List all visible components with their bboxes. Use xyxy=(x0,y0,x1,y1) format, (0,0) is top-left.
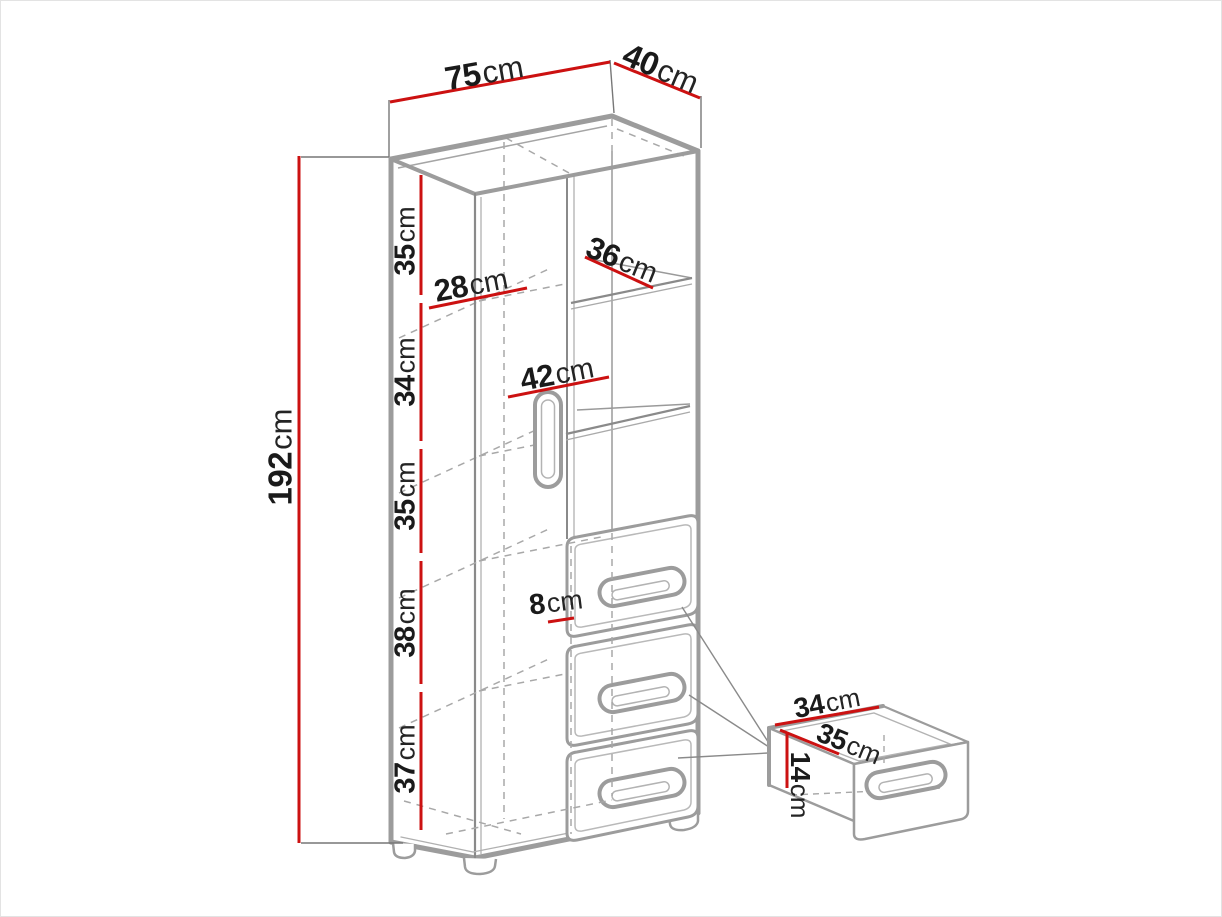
dimension-diagram: 75cm 40cm 192cm 35cm 34cm 35cm 38cm 37cm… xyxy=(0,0,1222,917)
dimension-value: 35 xyxy=(390,499,422,530)
foot-front xyxy=(464,858,496,874)
dimension-unit: cm xyxy=(264,409,299,450)
door-handle xyxy=(535,392,561,487)
open-shelf-middle xyxy=(566,404,690,440)
dimension-value: 14 xyxy=(785,752,816,782)
section-height-label-3: 35cm xyxy=(392,461,421,530)
section-height-label-4: 38cm xyxy=(392,588,421,657)
dimension-value: 35 xyxy=(390,244,422,275)
drawer-stack xyxy=(567,516,698,841)
dimension-value: 37 xyxy=(390,762,422,793)
dimension-value: 34 xyxy=(390,375,422,406)
dimension-unit: cm xyxy=(785,784,815,819)
height-dimension-label: 192cm xyxy=(264,409,297,506)
leader-line-2 xyxy=(689,695,772,749)
foot-left xyxy=(393,843,415,858)
dimension-unit: cm xyxy=(391,206,421,242)
dimension-unit: cm xyxy=(391,724,421,760)
dimension-unit: cm xyxy=(391,337,421,373)
dimension-unit: cm xyxy=(391,461,421,497)
dimension-value: 8 xyxy=(527,588,546,622)
section-height-label-5: 37cm xyxy=(392,724,421,793)
dimension-unit: cm xyxy=(391,588,421,624)
dimension-unit: cm xyxy=(545,584,584,618)
section-height-label-2: 34cm xyxy=(392,337,421,406)
dimension-value: 38 xyxy=(390,626,422,657)
dimension-value: 192 xyxy=(262,452,299,506)
dimension-value: 34 xyxy=(791,688,827,724)
drawer-height-label: 14cm xyxy=(786,752,814,819)
dimension-value: 28 xyxy=(431,268,471,309)
section-height-label-1: 35cm xyxy=(392,206,421,275)
dimension-value: 42 xyxy=(517,357,557,398)
dimension-unit: cm xyxy=(479,49,526,91)
dimension-value: 75 xyxy=(442,54,484,97)
cabinet-line-drawing xyxy=(1,1,1222,917)
